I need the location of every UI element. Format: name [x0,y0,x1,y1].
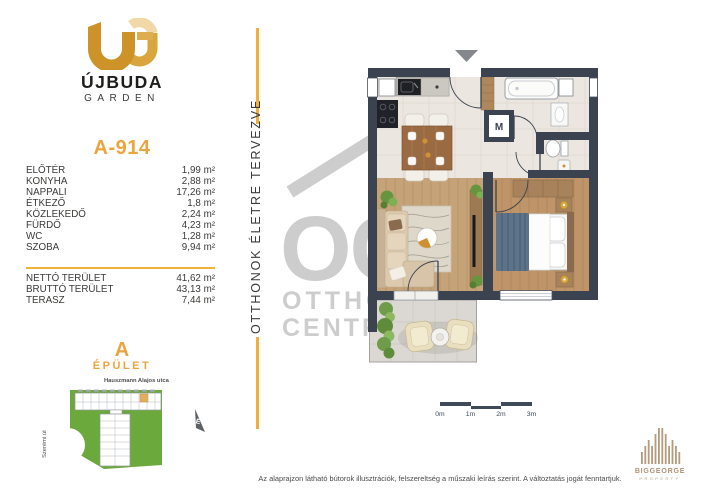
terrace [370,300,479,362]
terrace-chair [404,320,435,352]
scale-label: 1m [461,411,481,418]
brand-subname: GARDEN [30,93,214,104]
totals-list: NETTÓ TERÜLET41,62 m² BRUTTÓ TERÜLET43,1… [26,274,215,307]
entry-wardrobe [481,77,494,110]
tv [473,215,476,267]
scale-label: 2m [491,411,511,418]
room-area-list: ELŐTÉR1,99 m² KONYHA2,88 m² NAPPALI17,26… [26,166,215,254]
site-map-highlighted-unit [140,394,148,402]
tv-console [470,190,482,285]
developer-name: BIGGEORGE [635,468,685,475]
gold-bar-bottom [256,337,259,429]
cooktop [377,100,398,128]
scale-bar: 0m 1m 2m 3m [440,402,540,422]
street-label-top: Hauszmann Alajos utca [104,378,224,384]
disclaimer-text: Az alaprajzon látható bútorok illusztrác… [256,474,624,483]
brand-name: ÚJBUDA [30,72,214,93]
unit-id: A-914 [30,137,214,160]
scale-label: 3m [522,411,542,418]
gold-divider-rule [26,267,215,269]
floorplan-sheet: { "brand": { "logo_top": "ÚJBUDA", "logo… [0,0,707,500]
site-map [62,385,168,479]
biggeorge-property-logo: BIGGEORGE PROPERTY [628,420,692,484]
scale-label: 0m [430,411,450,418]
bed-blanket [496,213,529,271]
mechanical-shaft-label: M [495,122,503,133]
room-row: SZOBA9,94 m² [26,243,215,254]
sofa-chaise [403,261,434,287]
total-row: TERASZ7,44 m² [26,296,215,307]
building-label: ÉPÜLET [30,360,214,372]
biggeorge-towers-icon [641,428,680,464]
tagline: OTTHONOK ÉLETRE TERVEZVE [249,128,263,334]
building-letter: A [30,339,214,362]
developer-tag: PROPERTY [639,476,680,481]
floor-plan: M [352,42,608,374]
north-arrow-icon: É [191,407,207,435]
entry-arrow-icon [455,50,478,62]
ujbuda-garden-logo-icon [80,18,164,70]
toilet [546,140,560,157]
street-label-left: Szerémi út [42,418,48,470]
